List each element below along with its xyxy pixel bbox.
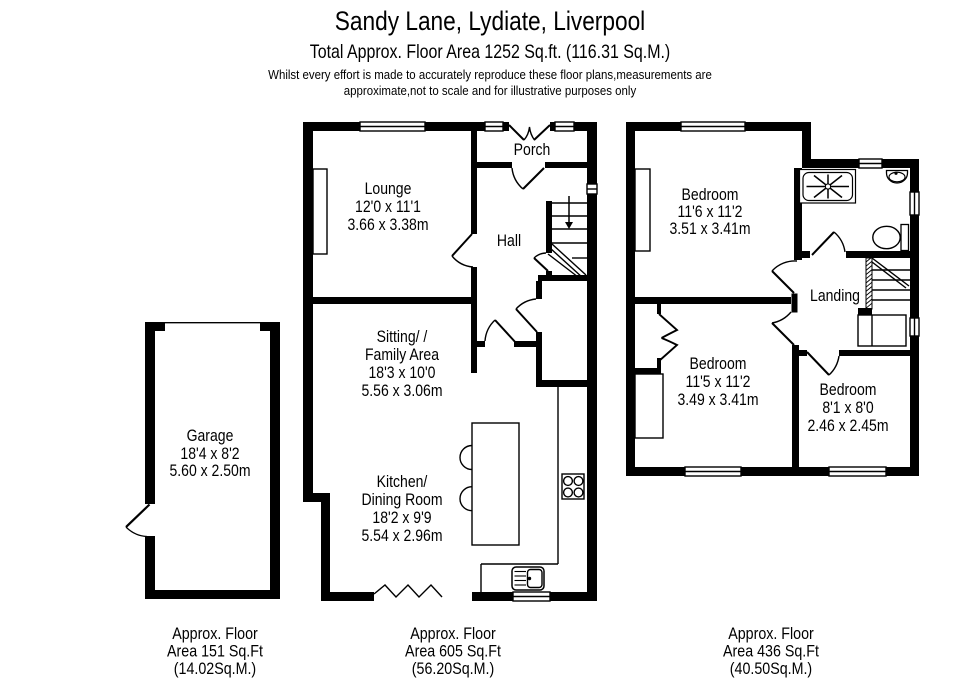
svg-text:18'4 x 8'2: 18'4 x 8'2 (180, 445, 239, 464)
svg-text:Approx. Floor: Approx. Floor (410, 625, 496, 643)
svg-text:3.66 x 3.38m: 3.66 x 3.38m (347, 216, 428, 235)
svg-text:Bedroom: Bedroom (820, 381, 877, 400)
svg-text:Dining Room: Dining Room (361, 491, 442, 510)
svg-text:Area 605 Sq.Ft: Area 605 Sq.Ft (405, 643, 502, 661)
svg-text:Total Approx. Floor Area 1252: Total Approx. Floor Area 1252 Sq.ft. (11… (310, 41, 670, 63)
svg-text:Bedroom: Bedroom (690, 355, 747, 374)
svg-text:5.60 x 2.50m: 5.60 x 2.50m (169, 462, 250, 481)
svg-text:Hall: Hall (497, 232, 521, 251)
svg-text:Area 151 Sq.Ft: Area 151 Sq.Ft (167, 643, 264, 661)
svg-text:(14.02Sq.M.): (14.02Sq.M.) (174, 660, 256, 678)
svg-text:Landing: Landing (810, 287, 860, 306)
svg-text:Porch: Porch (514, 141, 551, 160)
svg-text:5.54 x 2.96m: 5.54 x 2.96m (361, 527, 442, 546)
svg-text:Approx. Floor: Approx. Floor (728, 625, 814, 643)
svg-text:(40.50Sq.M.): (40.50Sq.M.) (730, 660, 812, 678)
svg-text:11'5 x 11'2: 11'5 x 11'2 (686, 373, 751, 392)
svg-text:(56.20Sq.M.): (56.20Sq.M.) (412, 660, 494, 678)
svg-text:3.51 x 3.41m: 3.51 x 3.41m (669, 220, 750, 239)
svg-text:11'6 x 11'2: 11'6 x 11'2 (678, 203, 743, 222)
svg-text:Sandy Lane, Lydiate, Liverpool: Sandy Lane, Lydiate, Liverpool (335, 6, 645, 36)
svg-text:approximate,not to scale and f: approximate,not to scale and for illustr… (344, 83, 637, 98)
svg-text:Area 436 Sq.Ft: Area 436 Sq.Ft (723, 643, 820, 661)
svg-text:3.49 x 3.41m: 3.49 x 3.41m (677, 391, 758, 410)
svg-text:Approx. Floor: Approx. Floor (172, 625, 258, 643)
svg-text:5.56 x 3.06m: 5.56 x 3.06m (361, 382, 442, 401)
svg-text:12'0 x 11'1: 12'0 x 11'1 (355, 198, 421, 217)
svg-text:Family Area: Family Area (365, 346, 439, 365)
svg-text:Whilst every effort is made to: Whilst every effort is made to accuratel… (268, 67, 712, 82)
svg-text:8'1 x 8'0: 8'1 x 8'0 (822, 399, 874, 418)
svg-text:Garage: Garage (187, 427, 234, 446)
svg-text:Kitchen/: Kitchen/ (377, 473, 428, 492)
svg-text:18'2 x 9'9: 18'2 x 9'9 (372, 509, 431, 528)
svg-text:2.46 x 2.45m: 2.46 x 2.45m (807, 417, 888, 436)
svg-text:Bedroom: Bedroom (682, 186, 739, 205)
svg-text:Lounge: Lounge (365, 180, 412, 199)
svg-text:18'3 x 10'0: 18'3 x 10'0 (369, 364, 436, 383)
svg-text:Sitting/ /: Sitting/ / (377, 328, 428, 347)
